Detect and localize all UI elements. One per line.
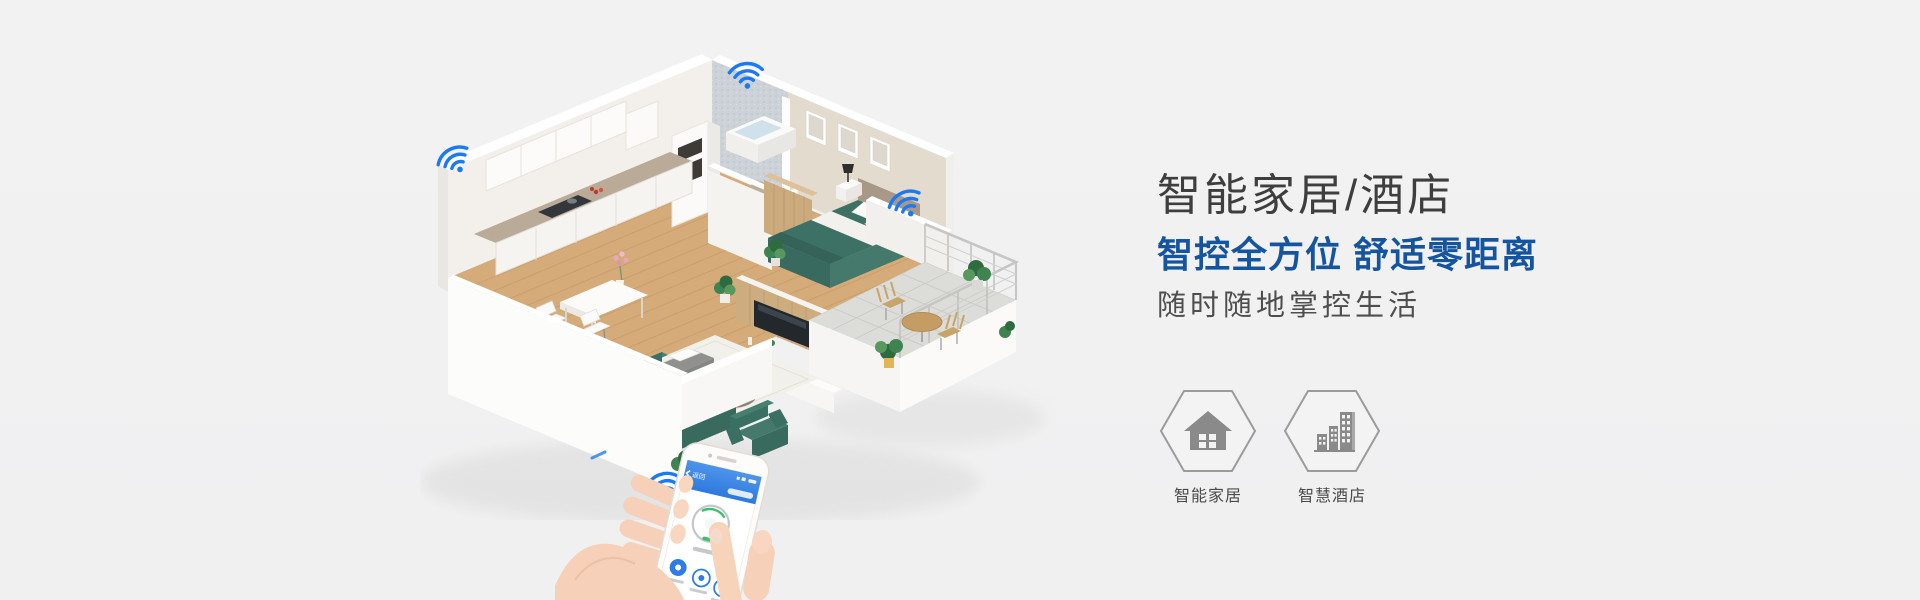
hero-banner: 返回 <box>0 0 1920 600</box>
smartphone-illustration: 返回 <box>555 420 855 600</box>
feature-smart-hotel[interactable]: 智慧酒店 <box>1282 390 1382 506</box>
feature-label: 智慧酒店 <box>1298 482 1366 506</box>
hero-title: 智能家居/酒店 <box>1157 174 1538 218</box>
feature-label: 智能家居 <box>1174 482 1242 506</box>
hexagon-badge <box>1160 390 1256 472</box>
feature-smart-home[interactable]: 智能家居 <box>1158 390 1258 506</box>
hero-subtitle: 智控全方位 舒适零距离 <box>1157 237 1538 273</box>
hero-copy: 智能家居/酒店 智控全方位 舒适零距离 随时随地掌控生活 <box>1157 174 1538 321</box>
hexagon-badge <box>1284 390 1380 472</box>
hero-tagline: 随时随地掌控生活 <box>1157 292 1538 321</box>
feature-list: 智能家居 <box>1158 390 1382 506</box>
